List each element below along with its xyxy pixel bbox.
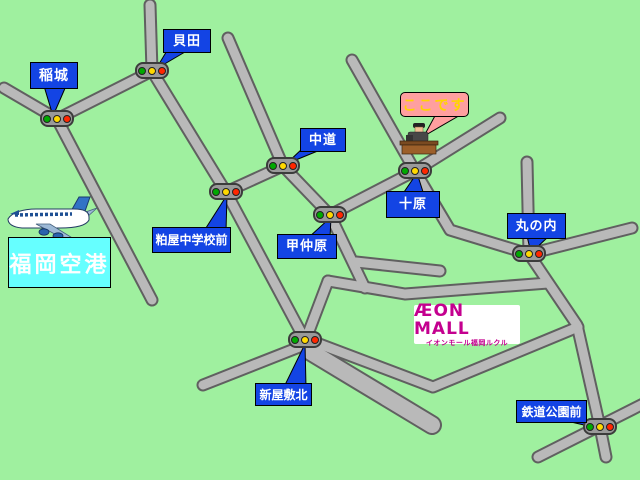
traffic-light-icon [209,183,243,200]
aeon-mall-subtext: イオンモール福岡ルクル [426,339,508,347]
airport-label: 福岡空港 [9,247,109,279]
red-light-dot [336,211,344,219]
callout-label: 鉄道公園前 [521,406,581,418]
green-light-dot [269,162,277,170]
red-light-dot [535,250,543,258]
yellow-light-dot [596,423,604,431]
callout-tobaru: 十原 [386,191,440,218]
aeon-mall-sign: ÆON MALL イオンモール福岡ルクル [414,305,520,344]
callout-label: 粕屋中学校前 [155,234,227,246]
yellow-light-dot [326,211,334,219]
red-light-dot [232,188,240,196]
callout-label: 稲城 [39,69,69,83]
callout-label: 中道 [309,134,337,147]
yellow-light-dot [148,67,156,75]
callout-shinyashiki-kita: 新屋敷北 [255,383,312,406]
traffic-light-icon [313,206,347,223]
green-light-dot [43,115,51,123]
route-map: 稲城 貝田 中道 十原 甲仲原 粕屋中学校前 丸の内 新屋敷北 鉄道公園前 ここ… [0,0,640,480]
callout-konakabaru: 甲仲原 [277,234,337,259]
destination-label: ここです [403,95,467,115]
callout-kasuya-jhs-mae: 粕屋中学校前 [152,227,231,253]
green-light-dot [138,67,146,75]
traffic-light-icon [40,110,74,127]
green-light-dot [212,188,220,196]
red-light-dot [311,336,319,344]
yellow-light-dot [53,115,61,123]
green-light-dot [401,167,409,175]
traffic-light-icon [135,62,169,79]
destination-bubble: ここです [400,92,469,117]
traffic-light-icon [266,157,300,174]
callout-label: 十原 [399,198,427,211]
callout-label: 甲仲原 [286,240,328,253]
red-light-dot [289,162,297,170]
callout-tetsudo-koen-mae: 鉄道公園前 [516,400,587,423]
traffic-light-icon [512,245,546,262]
yellow-light-dot [279,162,287,170]
traffic-light-icon [583,418,617,435]
airport-sign: 福岡空港 [8,237,111,288]
green-light-dot [316,211,324,219]
green-light-dot [515,250,523,258]
red-light-dot [158,67,166,75]
green-light-dot [291,336,299,344]
red-light-dot [63,115,71,123]
callout-kaida: 貝田 [163,29,211,53]
traffic-light-icon [398,162,432,179]
callout-marunouchi: 丸の内 [507,213,566,239]
yellow-light-dot [525,250,533,258]
callout-label: 新屋敷北 [259,389,307,401]
red-light-dot [421,167,429,175]
red-light-dot [606,423,614,431]
callout-label: 貝田 [173,35,201,48]
yellow-light-dot [301,336,309,344]
aeon-mall-logo-text: ÆON MALL [414,302,520,339]
yellow-light-dot [411,167,419,175]
callout-inagi: 稲城 [30,62,78,89]
yellow-light-dot [222,188,230,196]
traffic-light-icon [288,331,322,348]
green-light-dot [586,423,594,431]
callout-label: 丸の内 [515,220,557,233]
callout-nakamichi: 中道 [300,128,346,152]
airplane-icon [8,197,97,239]
